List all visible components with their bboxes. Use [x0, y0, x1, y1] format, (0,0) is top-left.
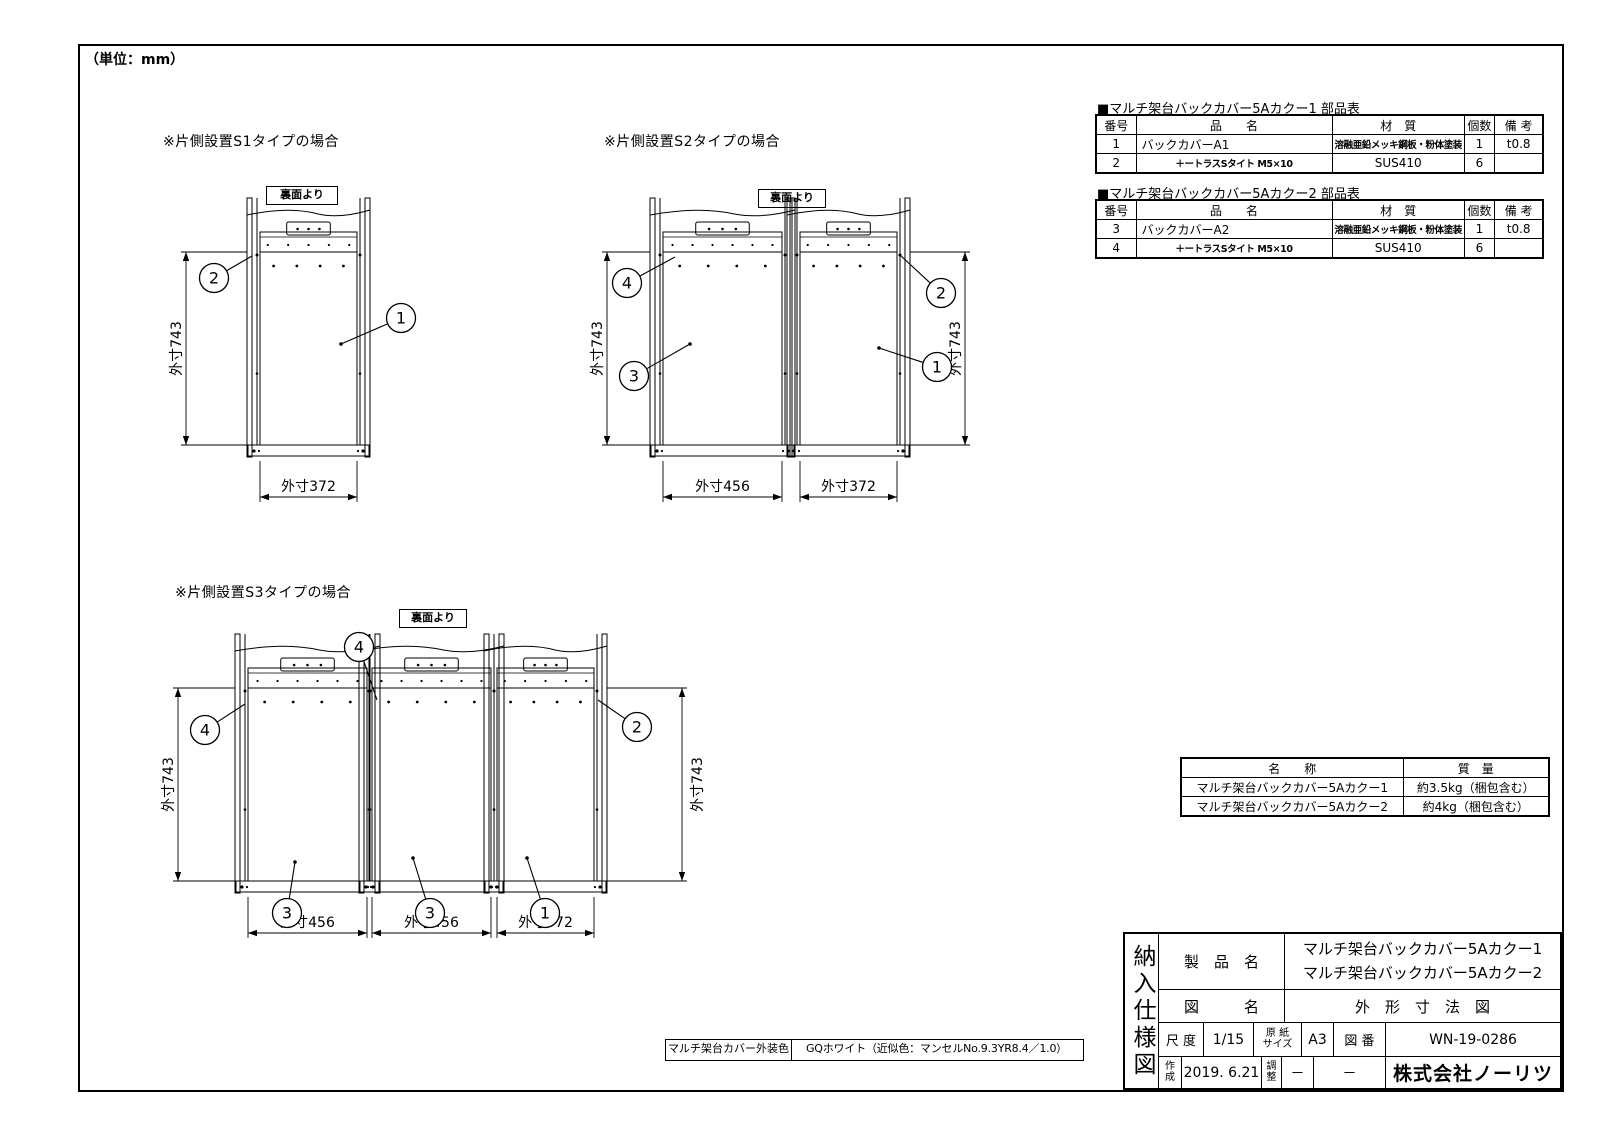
drawing-name-value: 外 形 寸 法 図	[1285, 990, 1560, 1022]
dimension-label: 3	[425, 904, 435, 923]
col-header: 材 質	[1332, 200, 1464, 220]
drawing-number-label: 図 番	[1334, 1023, 1386, 1056]
dimension-label: 外寸372	[821, 479, 876, 495]
col-header: 個数	[1464, 115, 1494, 135]
dimension-label: 1	[396, 309, 406, 328]
cell: t0.8	[1494, 135, 1543, 154]
unit-note: （単位：mm）	[85, 49, 184, 69]
cover-color-label: マルチ架台カバー外装色	[665, 1039, 792, 1061]
doc-type-vertical: 納入仕様図	[1125, 934, 1159, 1088]
cell: 溶融亜鉛メッキ鋼板・粉体塗装	[1332, 135, 1464, 154]
adjust-label: 調 整	[1262, 1057, 1282, 1088]
col-header: 品 名	[1136, 115, 1332, 135]
table-header-row: 番号品 名材 質個数備 考	[1096, 115, 1543, 135]
dimension-label: 4	[200, 721, 210, 740]
view-s3-drawing: 外寸743外寸743外寸456外寸456外寸372442331	[150, 600, 740, 1015]
product-name-2: マルチ架台バックカバー5Aカクー2	[1303, 962, 1542, 985]
cell: SUS410	[1332, 154, 1464, 174]
drawing-name-label: 図 名	[1159, 990, 1285, 1022]
cell: 4	[1096, 239, 1136, 259]
dimension-label: 外寸372	[281, 479, 336, 495]
parts-table-2: 番号品 名材 質個数備 考3バックカバーA2溶融亜鉛メッキ鋼板・粉体塗装1t0.…	[1095, 199, 1544, 259]
col-header: 番号	[1096, 200, 1136, 220]
table-row: マルチ架台バックカバー5Aカクー1約3.5kg（梱包含む）	[1181, 778, 1549, 797]
view-s1-drawing: 外寸743外寸37221	[140, 180, 460, 535]
created-date: 2019. 6.21	[1182, 1057, 1262, 1088]
scale-value: 1/15	[1204, 1023, 1254, 1056]
cell: バックカバーA1	[1136, 135, 1332, 154]
dimension-label: 3	[282, 904, 292, 923]
engineering-drawing-sheet: { "unit_note": "（単位：mm）", "views": [ { "…	[0, 0, 1600, 1131]
cell: 溶融亜鉛メッキ鋼板・粉体塗装	[1332, 220, 1464, 239]
cell: ＋ートラスSタイト M5×10	[1136, 154, 1332, 174]
view-s2-title: ※片側設置S2タイプの場合	[604, 131, 780, 151]
scale-label: 尺 度	[1159, 1023, 1204, 1056]
product-name-label: 製 品 名	[1159, 934, 1285, 989]
cell: 約4kg（梱包含む）	[1403, 797, 1549, 817]
col-header: 備 考	[1494, 200, 1543, 220]
cell: 6	[1464, 239, 1494, 259]
dimension-label: 3	[629, 367, 639, 386]
table-header-row: 名 称質 量	[1181, 758, 1549, 778]
dimension-label: 4	[354, 638, 364, 657]
cell: 1	[1464, 135, 1494, 154]
col-header: 品 名	[1136, 200, 1332, 220]
table-row: 1バックカバーA1溶融亜鉛メッキ鋼板・粉体塗装1t0.8	[1096, 135, 1543, 154]
view-s2-drawing: 外寸743外寸743外寸456外寸3724231	[575, 180, 1045, 535]
cell: マルチ架台バックカバー5Aカクー1	[1181, 778, 1403, 797]
dimension-label: 外寸743	[690, 757, 706, 812]
dimension-label: 2	[632, 718, 642, 737]
dimension-label: 外寸743	[161, 757, 177, 812]
cell	[1494, 239, 1543, 259]
cell: t0.8	[1494, 220, 1543, 239]
col-header: 個数	[1464, 200, 1494, 220]
table-row: 3バックカバーA2溶融亜鉛メッキ鋼板・粉体塗装1t0.8	[1096, 220, 1543, 239]
cell: 約3.5kg（梱包含む）	[1403, 778, 1549, 797]
view-s3-title: ※片側設置S3タイプの場合	[175, 582, 351, 602]
table-row: 2＋ートラスSタイト M5×10SUS4106	[1096, 154, 1543, 174]
cell: バックカバーA2	[1136, 220, 1332, 239]
dimension-label: 外寸743	[590, 321, 606, 376]
col-header: 質 量	[1403, 758, 1549, 778]
cell: 6	[1464, 154, 1494, 174]
product-name-1: マルチ架台バックカバー5Aカクー1	[1303, 938, 1542, 961]
dimension-label: 4	[622, 274, 632, 293]
table-row: マルチ架台バックカバー5Aカクー2約4kg（梱包含む）	[1181, 797, 1549, 817]
cell: 3	[1096, 220, 1136, 239]
company-logo: 株式会社ノーリツ	[1386, 1057, 1560, 1088]
col-header: 備 考	[1494, 115, 1543, 135]
col-header: 名 称	[1181, 758, 1403, 778]
table-row: 4＋ートラスSタイト M5×10SUS4106	[1096, 239, 1543, 259]
doc-type-text: 納入仕様図	[1130, 944, 1153, 1079]
cell: マルチ架台バックカバー5Aカクー2	[1181, 797, 1403, 817]
title-block-main: 製 品 名 マルチ架台バックカバー5Aカクー1 マルチ架台バックカバー5Aカクー…	[1159, 934, 1560, 1088]
col-header: 材 質	[1332, 115, 1464, 135]
cell	[1494, 154, 1543, 174]
revision-dash: －	[1314, 1057, 1386, 1088]
dimension-label: 1	[540, 904, 550, 923]
cell: ＋ートラスSタイト M5×10	[1136, 239, 1332, 259]
dimension-label: 外寸743	[169, 321, 185, 376]
cell: 1	[1464, 220, 1494, 239]
parts-table-1: 番号品 名材 質個数備 考1バックカバーA1溶融亜鉛メッキ鋼板・粉体塗装1t0.…	[1095, 114, 1544, 174]
paper-size-value: A3	[1302, 1023, 1334, 1056]
drawing-number-value: WN-19-0286	[1386, 1023, 1560, 1056]
view-s1-title: ※片側設置S1タイプの場合	[163, 131, 339, 151]
title-block: 納入仕様図 製 品 名 マルチ架台バックカバー5Aカクー1 マルチ架台バックカバ…	[1123, 932, 1562, 1090]
created-label: 作 成	[1159, 1057, 1182, 1088]
dimension-label: 外寸456	[695, 479, 750, 495]
mass-table: 名 称質 量マルチ架台バックカバー5Aカクー1約3.5kg（梱包含む）マルチ架台…	[1180, 757, 1550, 817]
cover-color-value: GQホワイト（近似色：マンセルNo.9.3YR8.4／1.0）	[790, 1039, 1084, 1061]
dimension-label: 1	[932, 358, 942, 377]
cell: SUS410	[1332, 239, 1464, 259]
adjust-value: －	[1282, 1057, 1314, 1088]
col-header: 番号	[1096, 115, 1136, 135]
cell: 1	[1096, 135, 1136, 154]
cell: 2	[1096, 154, 1136, 174]
table-header-row: 番号品 名材 質個数備 考	[1096, 200, 1543, 220]
paper-size-label: 原 紙 サイズ	[1254, 1023, 1302, 1056]
dimension-label: 2	[936, 284, 946, 303]
dimension-label: 2	[209, 269, 219, 288]
